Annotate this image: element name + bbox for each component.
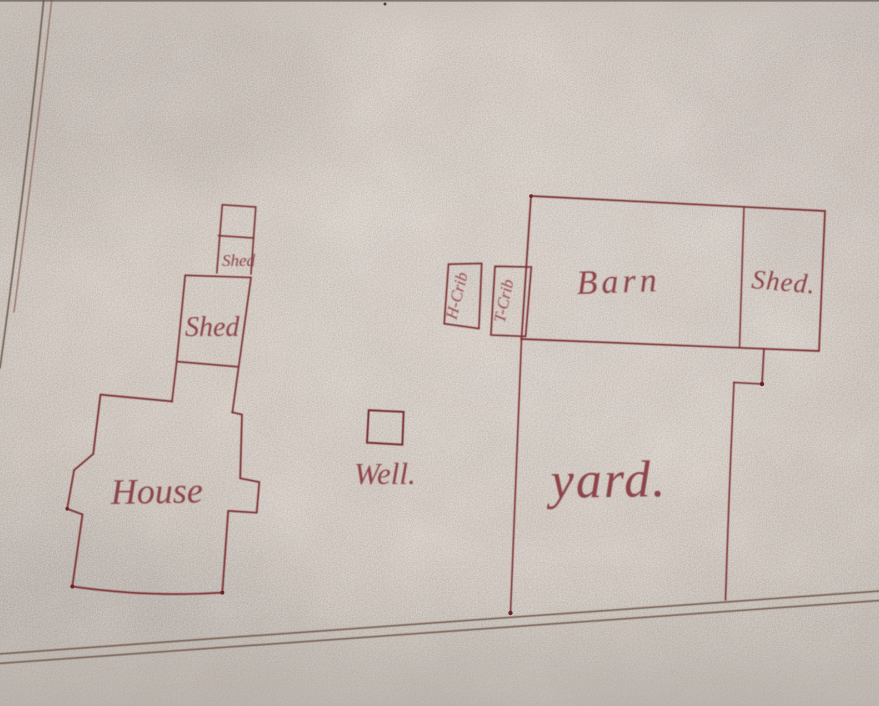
svg-text:Shed: Shed [222, 251, 256, 270]
svg-text:yard.: yard. [545, 451, 667, 510]
svg-text:Shed.: Shed. [750, 264, 817, 299]
svg-text:Well.: Well. [354, 456, 416, 491]
svg-text:Barn: Barn [576, 262, 661, 302]
svg-text:Shed: Shed [185, 312, 240, 343]
svg-text:House: House [109, 470, 203, 512]
